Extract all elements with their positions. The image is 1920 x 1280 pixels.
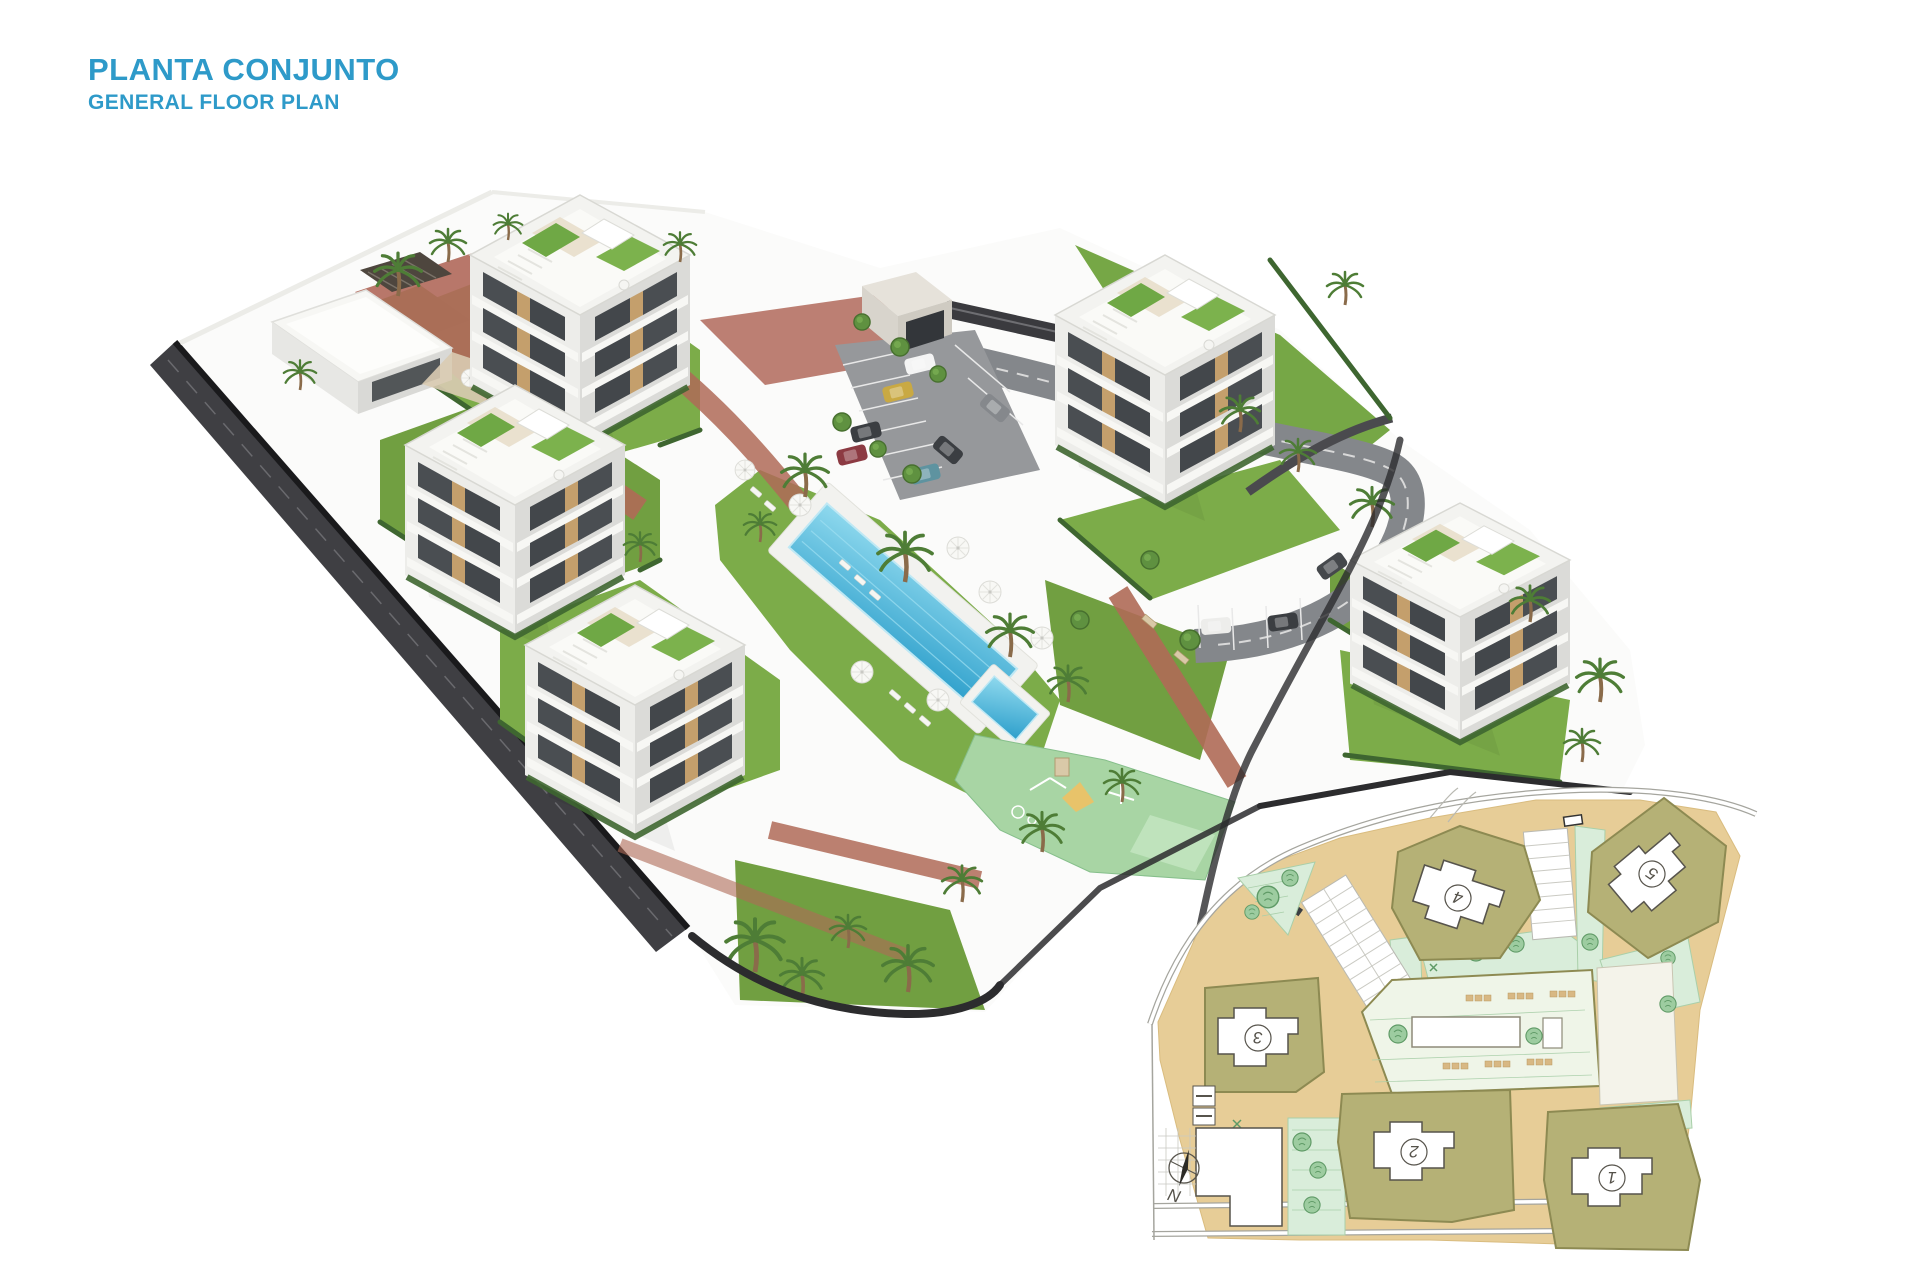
svg-text:2: 2 [1409,1142,1420,1161]
plan-amenity [1362,962,1678,1105]
site-plan-inset: 1 2 3 4 5 [0,0,1920,1280]
plan-plaza [1597,962,1678,1105]
page: 1 2 3 4 5 [0,0,1920,1280]
plan-pool [1412,1017,1520,1047]
page-subtitle: GENERAL FLOOR PLAN [88,91,400,115]
plan-kids-pool [1543,1018,1562,1048]
plan-entry-gate [1564,815,1583,826]
svg-text:1: 1 [1607,1168,1616,1187]
title-block: PLANTA CONJUNTO GENERAL FLOOR PLAN [88,52,400,115]
svg-text:3: 3 [1253,1028,1263,1047]
page-title: PLANTA CONJUNTO [88,52,400,88]
